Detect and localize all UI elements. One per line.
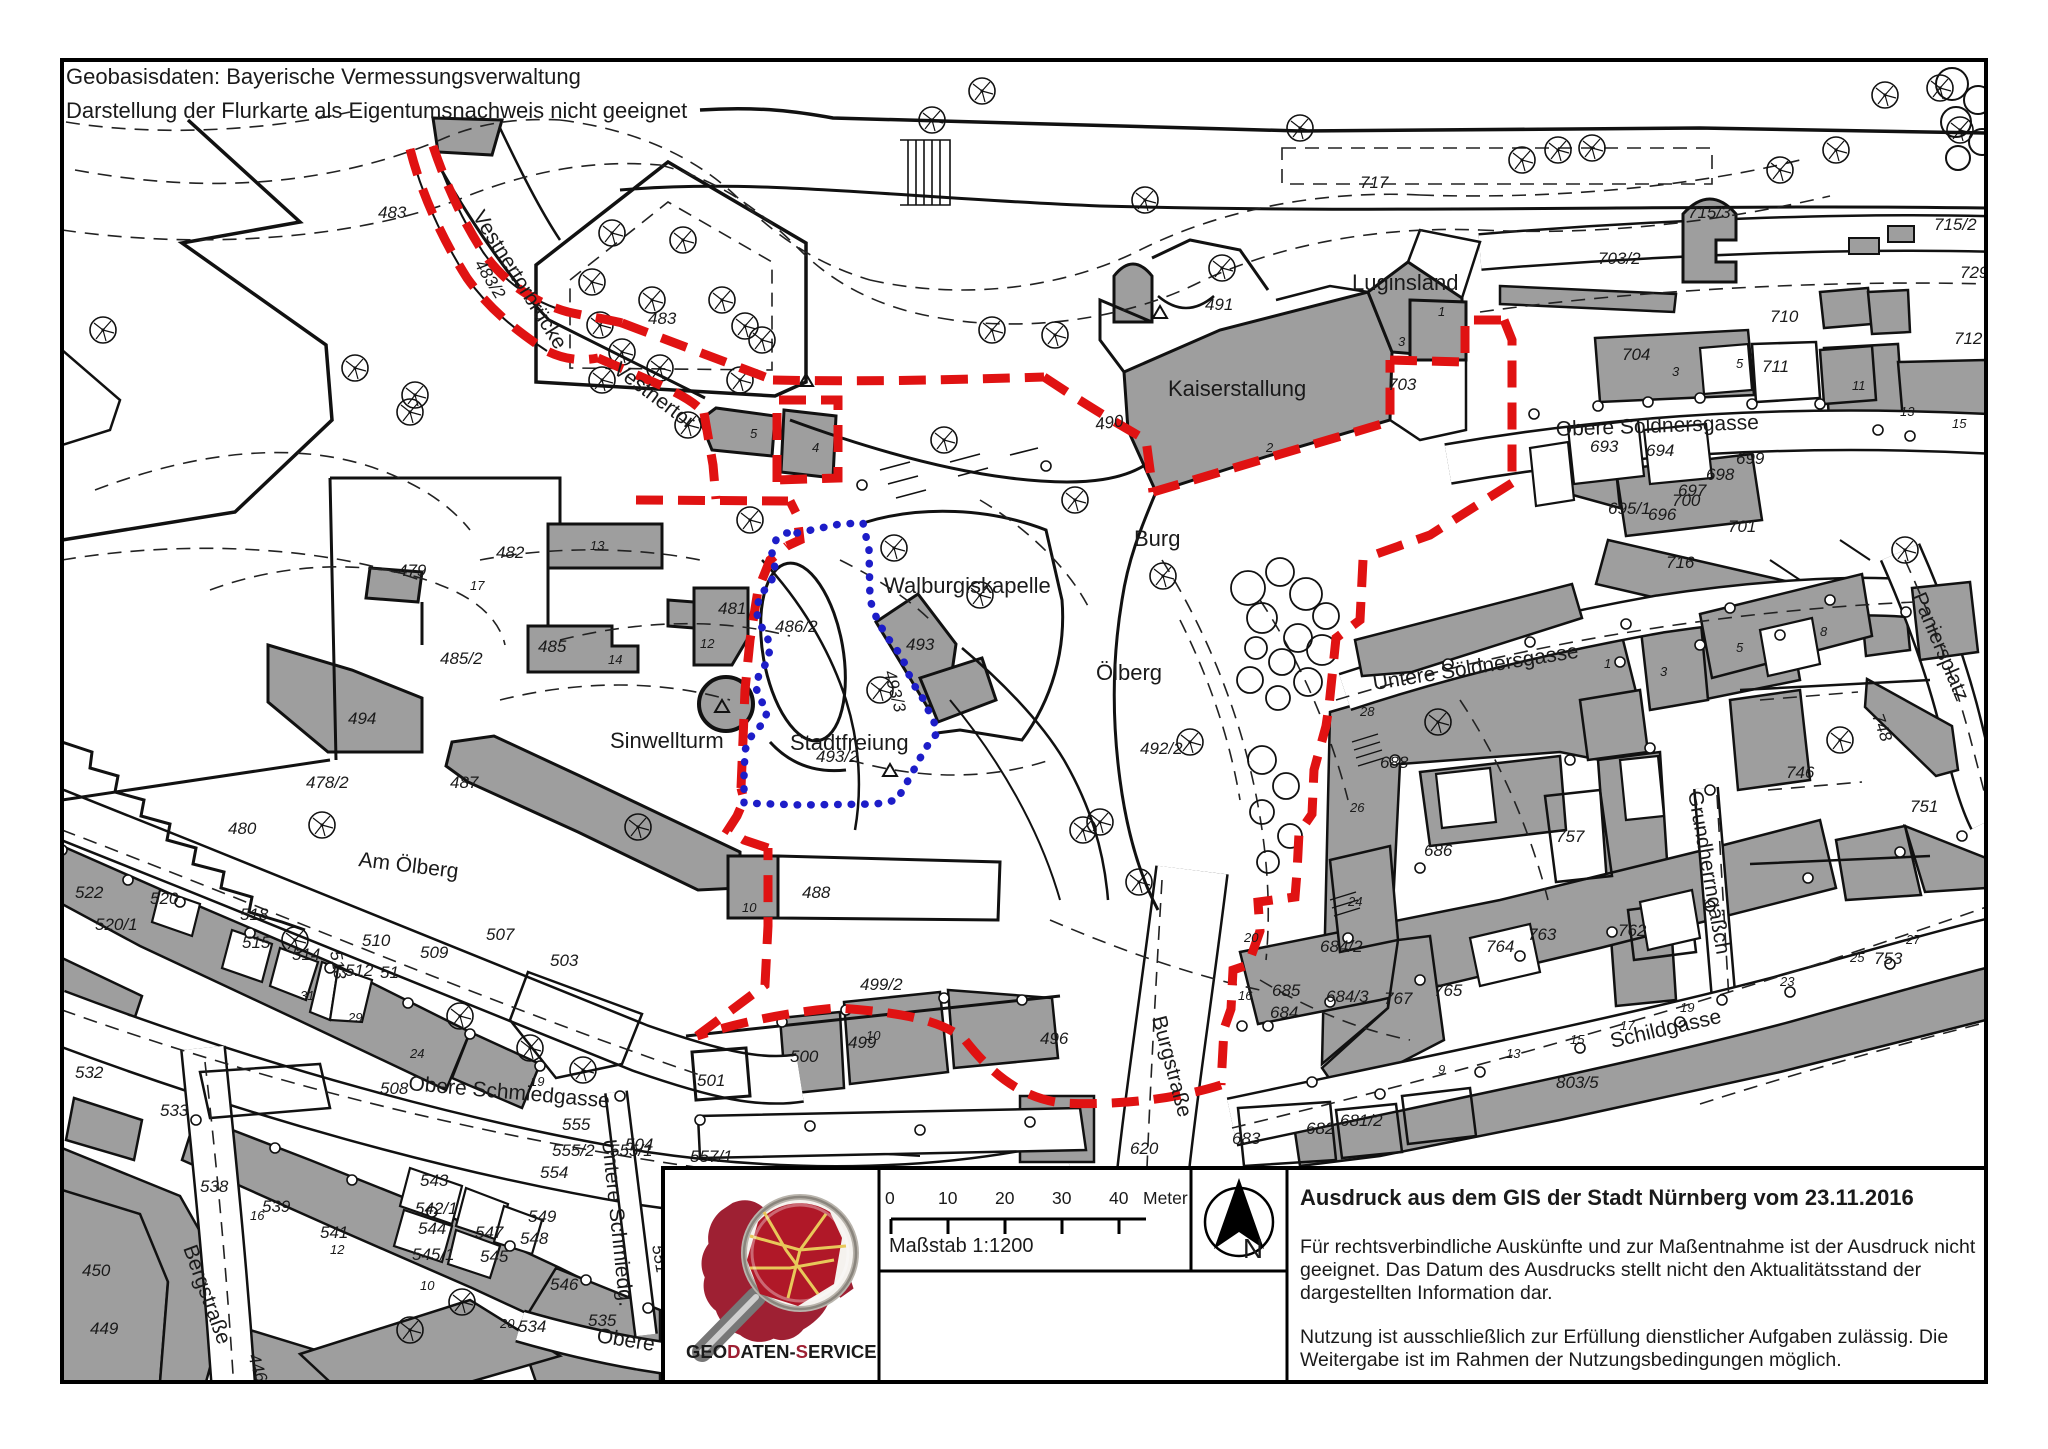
svg-text:704: 704 bbox=[1622, 345, 1650, 364]
svg-text:0: 0 bbox=[885, 1188, 895, 1208]
svg-text:716: 716 bbox=[1666, 553, 1695, 572]
svg-text:5: 5 bbox=[1736, 640, 1744, 655]
svg-text:40: 40 bbox=[1109, 1188, 1129, 1208]
svg-text:4: 4 bbox=[812, 440, 819, 455]
svg-text:17: 17 bbox=[470, 578, 485, 593]
svg-text:10: 10 bbox=[938, 1188, 958, 1208]
svg-text:3: 3 bbox=[1660, 664, 1668, 679]
svg-text:547: 547 bbox=[475, 1223, 504, 1242]
svg-text:13: 13 bbox=[1900, 404, 1915, 419]
svg-text:717: 717 bbox=[1360, 173, 1389, 192]
svg-text:N: N bbox=[1243, 1233, 1263, 1264]
svg-text:5: 5 bbox=[750, 426, 758, 441]
svg-text:Maßstab 1:1200: Maßstab 1:1200 bbox=[889, 1235, 1034, 1257]
svg-text:542/1: 542/1 bbox=[415, 1199, 458, 1218]
svg-text:geeignet. Das Datum des Ausdru: geeignet. Das Datum des Ausdrucks stellt… bbox=[1300, 1259, 1922, 1281]
svg-text:543: 543 bbox=[420, 1171, 449, 1190]
svg-text:Kaiserstallung: Kaiserstallung bbox=[1168, 376, 1306, 401]
svg-text:503: 503 bbox=[550, 951, 579, 970]
svg-text:480: 480 bbox=[228, 819, 257, 838]
svg-text:541: 541 bbox=[320, 1223, 348, 1242]
svg-text:449: 449 bbox=[90, 1319, 119, 1338]
svg-text:555/2: 555/2 bbox=[552, 1141, 595, 1160]
svg-text:16: 16 bbox=[1238, 988, 1253, 1003]
svg-text:803/5: 803/5 bbox=[1556, 1073, 1599, 1092]
svg-text:13: 13 bbox=[1506, 1046, 1521, 1061]
svg-text:512: 512 bbox=[345, 961, 374, 980]
svg-text:12: 12 bbox=[330, 1242, 345, 1257]
svg-text:1: 1 bbox=[1604, 656, 1611, 671]
svg-text:500: 500 bbox=[790, 1047, 819, 1066]
svg-text:535: 535 bbox=[588, 1311, 617, 1330]
svg-text:483: 483 bbox=[648, 309, 677, 328]
svg-text:9: 9 bbox=[1438, 1062, 1445, 1077]
svg-text:699: 699 bbox=[1736, 449, 1765, 468]
svg-text:694: 694 bbox=[1646, 441, 1674, 460]
svg-text:29: 29 bbox=[347, 1010, 362, 1025]
svg-text:620: 620 bbox=[1130, 1139, 1159, 1158]
svg-text:Für rechtsverbindliche Auskünf: Für rechtsverbindliche Auskünfte und zur… bbox=[1300, 1236, 1976, 1258]
svg-text:700: 700 bbox=[1672, 491, 1701, 510]
svg-text:763: 763 bbox=[1528, 925, 1557, 944]
svg-text:493/2: 493/2 bbox=[816, 747, 859, 766]
svg-text:522: 522 bbox=[75, 883, 104, 902]
svg-text:485/2: 485/2 bbox=[440, 649, 483, 668]
svg-text:546: 546 bbox=[550, 1275, 579, 1294]
svg-text:533: 533 bbox=[160, 1101, 189, 1120]
svg-text:20: 20 bbox=[995, 1188, 1015, 1208]
svg-text:715/2: 715/2 bbox=[1934, 215, 1977, 234]
svg-text:509: 509 bbox=[420, 943, 449, 962]
svg-text:13: 13 bbox=[590, 538, 605, 553]
svg-text:485: 485 bbox=[538, 637, 567, 656]
svg-text:488: 488 bbox=[802, 883, 831, 902]
svg-text:490: 490 bbox=[1094, 411, 1125, 434]
svg-text:494: 494 bbox=[348, 709, 376, 728]
svg-text:Luginsland: Luginsland bbox=[1352, 270, 1458, 295]
svg-text:762: 762 bbox=[1618, 921, 1647, 940]
svg-text:539: 539 bbox=[262, 1197, 291, 1216]
svg-text:Ölberg: Ölberg bbox=[1096, 660, 1162, 685]
svg-text:508: 508 bbox=[380, 1079, 409, 1098]
svg-text:24: 24 bbox=[1347, 894, 1362, 909]
svg-text:757: 757 bbox=[1556, 827, 1585, 846]
svg-text:Meter: Meter bbox=[1143, 1188, 1188, 1208]
svg-text:478/2: 478/2 bbox=[306, 773, 349, 792]
svg-text:532: 532 bbox=[75, 1063, 104, 1082]
svg-text:Sinwellturm: Sinwellturm bbox=[610, 728, 724, 753]
svg-text:712: 712 bbox=[1954, 329, 1983, 348]
svg-text:538: 538 bbox=[200, 1177, 229, 1196]
svg-text:15: 15 bbox=[1570, 1032, 1585, 1047]
svg-text:Burg: Burg bbox=[1134, 526, 1180, 551]
svg-text:507: 507 bbox=[486, 925, 515, 944]
svg-text:Weitergabe ist im Rahmen der N: Weitergabe ist im Rahmen der Nutzungsbed… bbox=[1300, 1349, 1842, 1371]
svg-text:483: 483 bbox=[378, 203, 407, 222]
svg-text:681/2: 681/2 bbox=[1340, 1111, 1383, 1130]
svg-text:15: 15 bbox=[1952, 416, 1967, 431]
svg-text:534: 534 bbox=[518, 1317, 546, 1336]
svg-text:23: 23 bbox=[1779, 974, 1795, 989]
svg-text:5: 5 bbox=[1736, 356, 1744, 371]
svg-text:10: 10 bbox=[742, 900, 757, 915]
svg-text:715/3: 715/3 bbox=[1688, 203, 1731, 222]
svg-text:683: 683 bbox=[1232, 1129, 1261, 1148]
svg-text:544: 544 bbox=[418, 1219, 446, 1238]
svg-text:751: 751 bbox=[1910, 797, 1938, 816]
svg-text:12: 12 bbox=[700, 636, 715, 651]
svg-text:767: 767 bbox=[1384, 989, 1413, 1008]
svg-text:19: 19 bbox=[1680, 1000, 1694, 1015]
svg-text:486/2: 486/2 bbox=[775, 617, 818, 636]
svg-text:20: 20 bbox=[499, 1316, 515, 1331]
svg-text:693: 693 bbox=[1590, 437, 1619, 456]
svg-text:31: 31 bbox=[300, 988, 314, 1003]
svg-text:510: 510 bbox=[362, 931, 391, 950]
svg-text:746: 746 bbox=[1786, 763, 1815, 782]
svg-text:8: 8 bbox=[1820, 624, 1828, 639]
svg-text:555: 555 bbox=[562, 1115, 591, 1134]
svg-text:51: 51 bbox=[380, 963, 399, 982]
svg-text:686: 686 bbox=[1424, 841, 1453, 860]
svg-text:Geobasisdaten: Bayerische Verm: Geobasisdaten: Bayerische Vermessungsver… bbox=[66, 64, 581, 89]
svg-text:548: 548 bbox=[520, 1229, 549, 1248]
svg-text:501: 501 bbox=[697, 1071, 725, 1090]
svg-text:482: 482 bbox=[496, 543, 525, 562]
svg-text:3: 3 bbox=[1398, 334, 1406, 349]
svg-text:764: 764 bbox=[1486, 937, 1514, 956]
svg-text:30: 30 bbox=[1052, 1188, 1072, 1208]
svg-text:2: 2 bbox=[1265, 440, 1274, 455]
svg-text:Ausdruck aus dem GIS der Stadt: Ausdruck aus dem GIS der Stadt Nürnberg … bbox=[1300, 1185, 1914, 1210]
svg-text:684/2: 684/2 bbox=[1320, 937, 1363, 956]
svg-text:711: 711 bbox=[1762, 357, 1789, 376]
svg-text:514: 514 bbox=[292, 945, 320, 964]
svg-text:695/1: 695/1 bbox=[1608, 499, 1651, 518]
svg-text:Darstellung der Flurkarte als: Darstellung der Flurkarte als Eigentumsn… bbox=[66, 98, 687, 123]
svg-text:496: 496 bbox=[1040, 1029, 1069, 1048]
svg-text:491: 491 bbox=[1205, 295, 1233, 314]
svg-text:549: 549 bbox=[528, 1207, 557, 1226]
svg-text:684: 684 bbox=[1270, 1003, 1298, 1022]
svg-text:765: 765 bbox=[1434, 981, 1463, 1000]
svg-text:520: 520 bbox=[150, 889, 179, 908]
svg-text:682: 682 bbox=[1306, 1119, 1335, 1138]
svg-text:10: 10 bbox=[420, 1278, 435, 1293]
svg-text:481: 481 bbox=[718, 599, 746, 618]
svg-text:520/1: 520/1 bbox=[95, 915, 138, 934]
svg-text:28: 28 bbox=[1359, 704, 1375, 719]
svg-text:dargestellten Information dar.: dargestellten Information dar. bbox=[1300, 1282, 1553, 1304]
svg-text:703/2: 703/2 bbox=[1598, 249, 1641, 268]
svg-text:545/1: 545/1 bbox=[412, 1245, 455, 1264]
svg-text:499: 499 bbox=[848, 1033, 877, 1052]
svg-text:688: 688 bbox=[1380, 753, 1409, 772]
svg-text:25: 25 bbox=[1849, 950, 1865, 965]
svg-text:499/2: 499/2 bbox=[860, 975, 903, 994]
svg-text:24: 24 bbox=[409, 1046, 424, 1061]
svg-text:Walburgiskapelle: Walburgiskapelle bbox=[884, 573, 1051, 598]
svg-text:17: 17 bbox=[1620, 1018, 1635, 1033]
svg-text:557/1: 557/1 bbox=[690, 1147, 733, 1166]
svg-text:710: 710 bbox=[1770, 307, 1799, 326]
svg-text:685: 685 bbox=[1272, 981, 1301, 1000]
svg-text:GEODATEN-SERVICE: GEODATEN-SERVICE bbox=[686, 1341, 877, 1362]
svg-text:703: 703 bbox=[1388, 375, 1417, 394]
svg-text:684/3: 684/3 bbox=[1326, 987, 1369, 1006]
svg-text:Nutzung ist ausschließlich zur: Nutzung ist ausschließlich zur Erfüllung… bbox=[1300, 1326, 1948, 1348]
svg-text:555/1: 555/1 bbox=[610, 1141, 653, 1160]
svg-text:1: 1 bbox=[1438, 304, 1445, 319]
svg-text:11: 11 bbox=[1852, 378, 1866, 393]
svg-text:450: 450 bbox=[82, 1261, 111, 1280]
svg-text:698: 698 bbox=[1706, 465, 1735, 484]
svg-text:20: 20 bbox=[1243, 930, 1259, 945]
svg-text:515: 515 bbox=[242, 933, 271, 952]
svg-text:492/2: 492/2 bbox=[1140, 739, 1183, 758]
svg-text:493: 493 bbox=[906, 635, 935, 654]
svg-text:3: 3 bbox=[1672, 364, 1680, 379]
svg-text:545: 545 bbox=[480, 1247, 509, 1266]
svg-text:19: 19 bbox=[530, 1074, 544, 1089]
svg-text:518: 518 bbox=[240, 905, 269, 924]
svg-text:27: 27 bbox=[1905, 932, 1921, 947]
svg-text:753: 753 bbox=[1874, 949, 1903, 968]
svg-text:479: 479 bbox=[398, 561, 427, 580]
svg-text:14: 14 bbox=[608, 652, 622, 667]
svg-text:554: 554 bbox=[540, 1163, 568, 1182]
svg-text:701: 701 bbox=[1728, 517, 1756, 536]
svg-text:487: 487 bbox=[450, 773, 479, 792]
svg-text:26: 26 bbox=[1349, 800, 1365, 815]
